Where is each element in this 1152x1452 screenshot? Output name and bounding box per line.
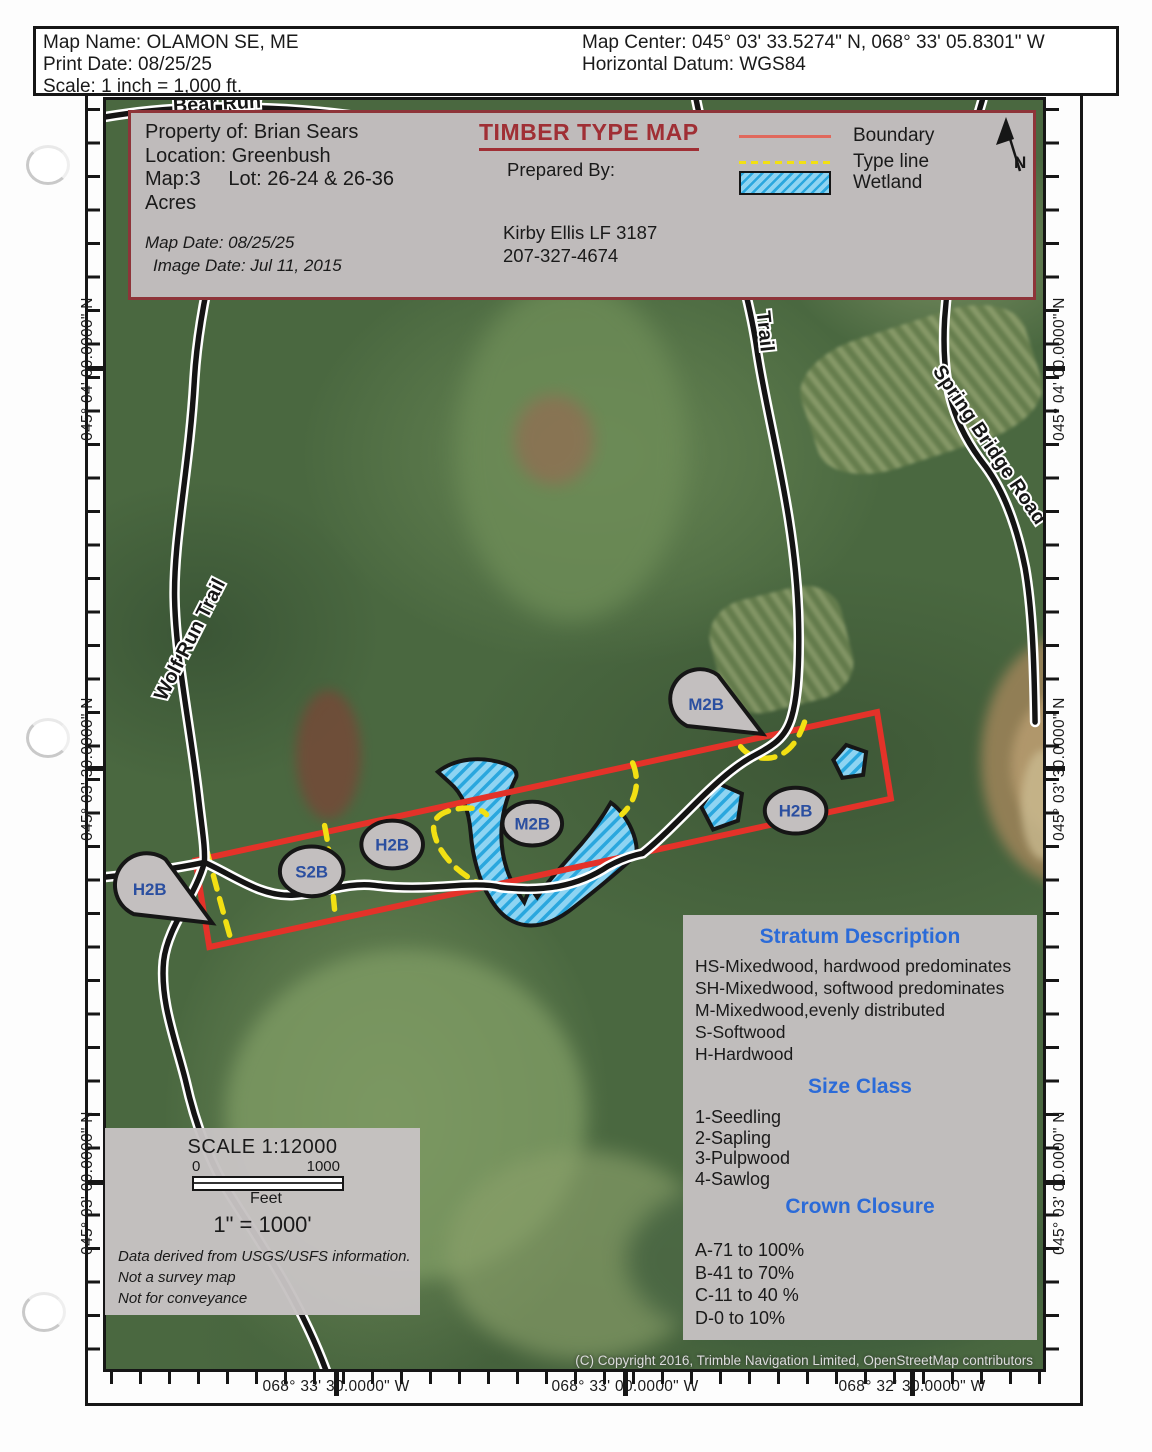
header-scale: Scale: 1 inch = 1,000 ft. (43, 76, 242, 97)
scale-box: SCALE 1:12000 0 1000 Feet 1" = 1000' Dat… (105, 1128, 420, 1315)
size-class-lines: 1-Seedling 2-Sapling 3-Pulpwood 4-Sawlog (695, 1107, 1037, 1189)
preparer-name: Kirby Ellis LF 3187 (503, 221, 657, 244)
legend-row-wetland: Wetland (739, 171, 922, 195)
date-info: Map Date: 08/25/25 Image Date: Jul 11, 2… (145, 231, 342, 277)
marker-label: H2B (375, 835, 409, 854)
crown-closure-lines: A-71 to 100% B-41 to 70% C-11 to 40 % D-… (695, 1239, 1037, 1329)
type-line-swatch (739, 161, 831, 164)
size-class-line: 2-Sapling (695, 1128, 1037, 1149)
stratum-line: HS-Mixedwood, hardwood predominates (695, 955, 1037, 977)
legend-row-type-line: Type line (739, 151, 929, 173)
scale-note: Not a survey map (118, 1267, 411, 1288)
image-date: Image Date: Jul 11, 2015 (145, 254, 342, 277)
crown-closure-line: C-11 to 40 % (695, 1284, 1037, 1307)
stratum-line: M-Mixedwood,evenly distributed (695, 999, 1037, 1021)
scale-equivalence: 1" = 1000' (105, 1212, 420, 1238)
marker-label: S2B (295, 862, 328, 881)
longitude-label: 068° 32' 30.0000" W (822, 1378, 1002, 1396)
scale-bar-start: 0 (192, 1158, 200, 1175)
header-right-column: Map Center: 045° 03' 33.5274" N, 068° 33… (582, 32, 1045, 76)
horizontal-datum: Horizontal Datum: WGS84 (582, 54, 806, 75)
title-block: Property of: Brian Sears Location: Green… (128, 110, 1036, 300)
scale-notes: Data derived from USGS/USFS information.… (118, 1246, 411, 1309)
copyright-notice: (C) Copyright 2016, Trimble Navigation L… (575, 1353, 1033, 1368)
property-info: Property of: Brian Sears Location: Green… (145, 121, 394, 215)
size-class-line: 3-Pulpwood (695, 1148, 1037, 1169)
crown-closure-line: D-0 to 10% (695, 1307, 1037, 1330)
print-date: Print Date: 08/25/25 (43, 54, 212, 75)
north-arrow-icon: N (987, 115, 1031, 177)
scale-bar-labels: 0 1000 (192, 1158, 340, 1175)
scale-bar-end: 1000 (307, 1158, 340, 1175)
north-label: N (1014, 153, 1026, 172)
wetland-polygons (438, 745, 866, 925)
neatline-right (1080, 95, 1083, 1406)
latitude-label: 045° 03' 00.0000" N (79, 1093, 97, 1273)
preparer-phone: 207-327-4674 (503, 244, 657, 267)
punch-hole (26, 718, 70, 758)
crown-closure-heading: Crown Closure (683, 1195, 1037, 1219)
scale-bar-unit: Feet (192, 1190, 340, 1208)
scanned-map-page: Map Name: OLAMON SE, ME Print Date: 08/2… (0, 0, 1152, 1452)
road-label-trail: Trail (752, 310, 778, 353)
punch-hole (22, 1292, 66, 1332)
map-header-box: Map Name: OLAMON SE, ME Print Date: 08/2… (33, 26, 1119, 96)
map-center: Map Center: 045° 03' 33.5274" N, 068° 33… (582, 32, 1045, 53)
neatline-bottom (85, 1403, 1083, 1406)
stratum-line: SH-Mixedwood, softwood predominates (695, 977, 1037, 999)
header-left-column: Map Name: OLAMON SE, ME Print Date: 08/2… (43, 32, 299, 98)
stratum-lines: HS-Mixedwood, hardwood predominates SH-M… (695, 955, 1037, 1065)
marker-label: M2B (688, 695, 724, 714)
latitude-label: 045° 04' 00.0000" N (1051, 279, 1069, 459)
latitude-label: 045° 03' 30.0000" N (79, 679, 97, 859)
size-class-line: 1-Seedling (695, 1107, 1037, 1128)
road-label-spring-bridge-road: Spring Bridge Road (928, 361, 1043, 528)
longitude-label: 068° 33' 30.0000" W (246, 1378, 426, 1396)
road-label-wolf-run-trail: Wolf Run Trail (150, 575, 230, 704)
legend-label-type-line: Type line (853, 151, 929, 173)
map-name: Map Name: OLAMON SE, ME (43, 32, 299, 53)
size-class-heading: Size Class (683, 1075, 1037, 1099)
punch-hole (26, 145, 70, 185)
map-date: Map Date: 08/25/25 (145, 231, 342, 254)
scale-title: SCALE 1:12000 (105, 1136, 420, 1159)
preparer-info: Kirby Ellis LF 3187 207-327-4674 (503, 221, 657, 267)
stratum-heading: Stratum Description (683, 925, 1037, 949)
scale-note: Data derived from USGS/USFS information. (118, 1246, 411, 1267)
latitude-label: 045° 04' 00.0000" N (79, 279, 97, 459)
legend-label-wetland: Wetland (853, 172, 922, 194)
crown-closure-line: A-71 to 100% (695, 1239, 1037, 1262)
size-class-line: 4-Sawlog (695, 1169, 1037, 1190)
map-title: TIMBER TYPE MAP (479, 119, 699, 151)
crown-closure-line: B-41 to 70% (695, 1262, 1037, 1285)
wetland-swatch (739, 171, 831, 195)
legend-label-boundary: Boundary (853, 125, 934, 147)
scale-bar (192, 1176, 344, 1191)
legend-row-boundary: Boundary (739, 125, 934, 147)
acres: Acres (145, 192, 196, 214)
prepared-by-label: Prepared By: (507, 159, 615, 181)
longitude-label: 068° 33' 00.0000" W (535, 1378, 715, 1396)
latitude-label: 045° 03' 00.0000" N (1051, 1093, 1069, 1273)
location: Location: Greenbush (145, 145, 331, 167)
stratum-description-box: Stratum Description HS-Mixedwood, hardwo… (683, 915, 1037, 1340)
marker-label: H2B (779, 802, 813, 821)
marker-label: H2B (133, 880, 167, 899)
marker-label: M2B (514, 815, 550, 834)
wetland-polygon (833, 745, 866, 778)
scale-note: Not for conveyance (118, 1288, 411, 1309)
map-lot: Map:3 Lot: 26-24 & 26-36 (145, 168, 394, 190)
boundary-line-swatch (739, 135, 831, 138)
property-of: Property of: Brian Sears (145, 121, 358, 143)
stratum-line: H-Hardwood (695, 1043, 1037, 1065)
stratum-line: S-Softwood (695, 1021, 1037, 1043)
type-line (622, 763, 637, 815)
latitude-label: 045° 03' 30.0000" N (1051, 679, 1069, 859)
